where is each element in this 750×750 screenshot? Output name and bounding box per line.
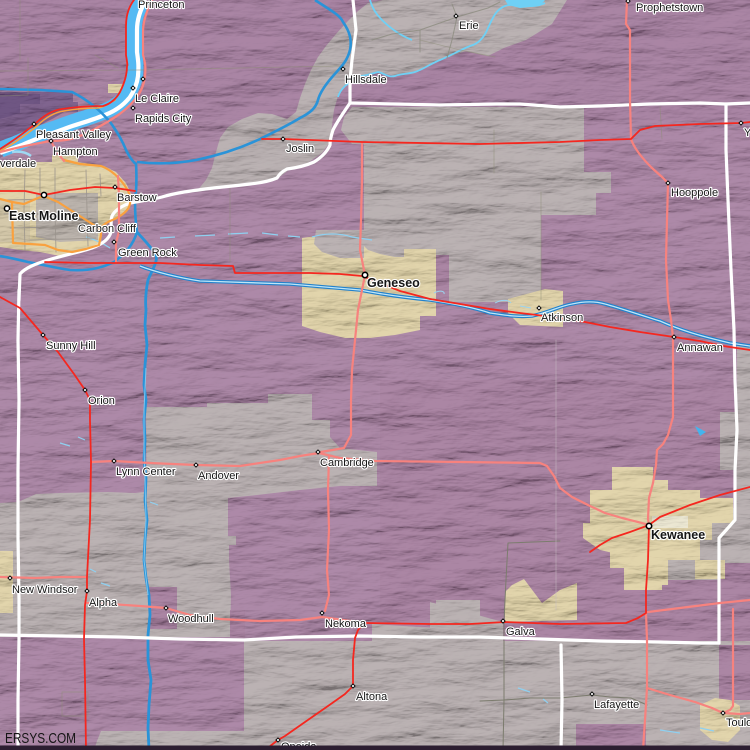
svg-text:Green Rock: Green Rock xyxy=(118,247,177,259)
svg-text:Nekoma: Nekoma xyxy=(325,618,367,630)
svg-text:Galva: Galva xyxy=(506,626,536,638)
svg-text:Geneseo: Geneseo xyxy=(367,276,420,290)
svg-text:verdale: verdale xyxy=(0,158,36,170)
svg-text:Joslin: Joslin xyxy=(286,143,314,155)
svg-text:Woodhull: Woodhull xyxy=(168,613,214,625)
svg-text:Altona: Altona xyxy=(356,691,388,703)
svg-text:Y: Y xyxy=(744,127,750,139)
svg-text:New Windsor: New Windsor xyxy=(12,584,78,596)
svg-text:Rapids City: Rapids City xyxy=(135,113,192,125)
svg-text:Hooppole: Hooppole xyxy=(671,187,718,199)
svg-text:Le Claire: Le Claire xyxy=(135,93,179,105)
svg-text:East Moline: East Moline xyxy=(9,209,79,223)
svg-text:Andover: Andover xyxy=(198,470,239,482)
svg-text:Hampton: Hampton xyxy=(53,146,98,158)
svg-text:Hillsdale: Hillsdale xyxy=(345,74,387,86)
svg-text:Atkinson: Atkinson xyxy=(541,312,583,324)
svg-text:Prophetstown: Prophetstown xyxy=(636,2,703,14)
svg-text:Annawan: Annawan xyxy=(677,342,723,354)
svg-text:Lafayette: Lafayette xyxy=(594,699,639,711)
svg-text:Cambridge: Cambridge xyxy=(320,457,374,469)
svg-text:Sunny Hill: Sunny Hill xyxy=(46,340,96,352)
svg-text:Toulo: Toulo xyxy=(726,717,750,729)
svg-text:Carbon Cliff: Carbon Cliff xyxy=(78,223,137,235)
svg-text:Lynn Center: Lynn Center xyxy=(116,466,176,478)
svg-text:Kewanee: Kewanee xyxy=(651,528,705,542)
svg-text:Orion: Orion xyxy=(88,395,115,407)
svg-text:Princeton: Princeton xyxy=(138,0,184,11)
svg-text:ERSYS.COM: ERSYS.COM xyxy=(5,730,76,747)
svg-text:Pleasant Valley: Pleasant Valley xyxy=(36,129,112,141)
svg-text:Barstow: Barstow xyxy=(117,192,157,204)
svg-text:Alpha: Alpha xyxy=(89,597,118,609)
svg-text:Erie: Erie xyxy=(459,20,479,32)
